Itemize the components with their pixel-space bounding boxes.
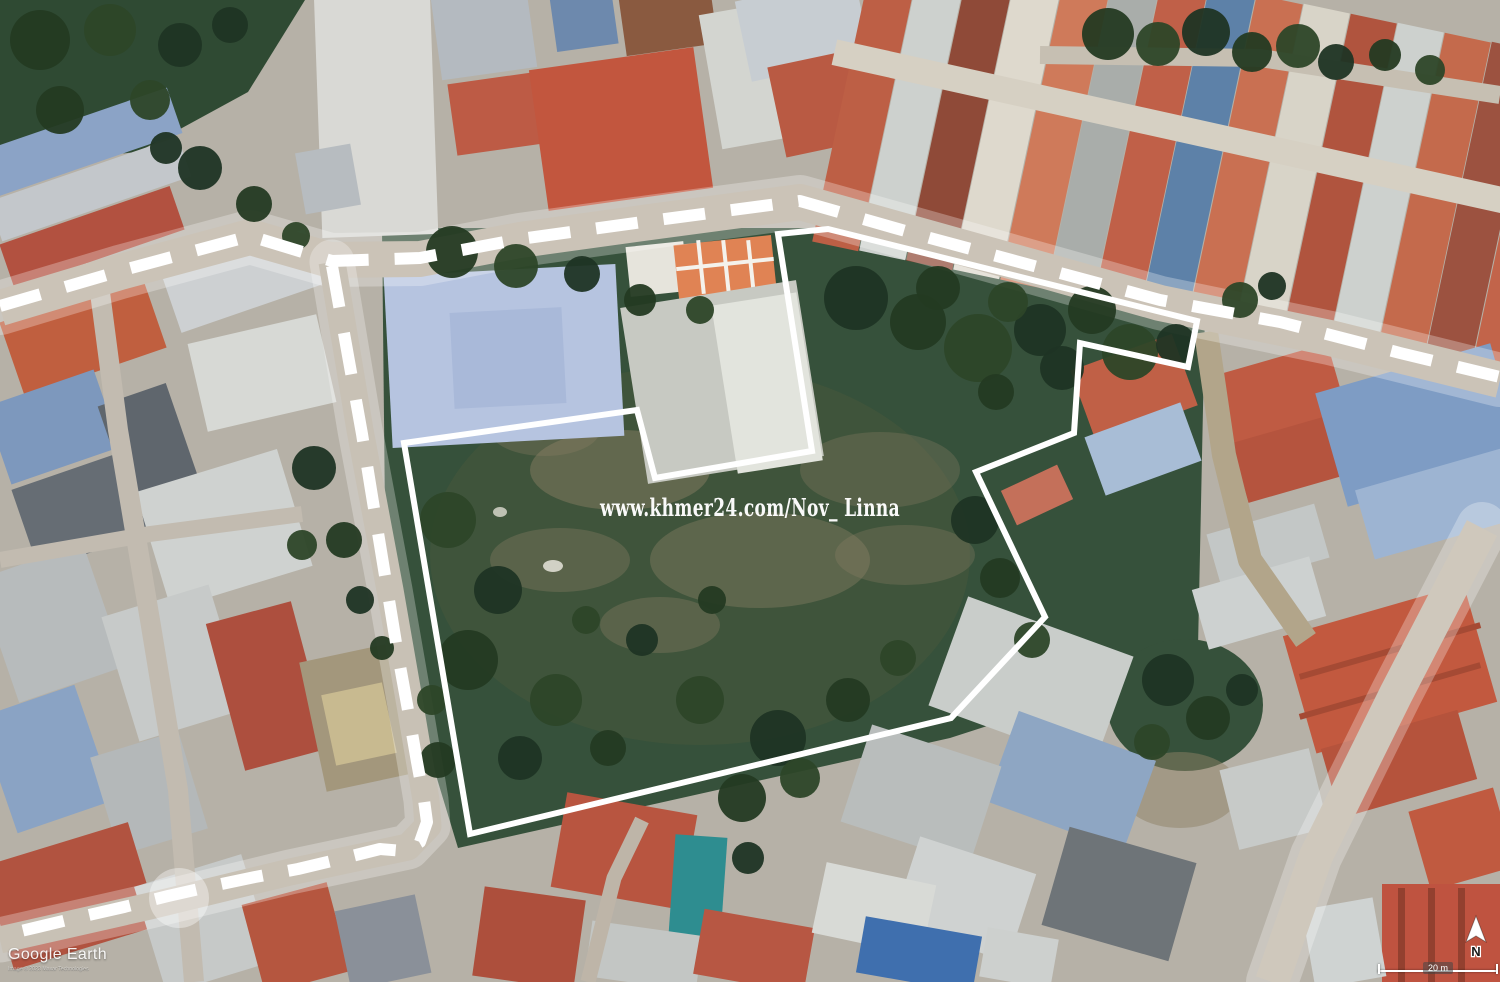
tree: [1318, 44, 1354, 80]
tree: [1182, 8, 1230, 56]
tree: [346, 586, 374, 614]
tree: [676, 676, 724, 724]
satellite-map-view: www.khmer24.com/Nov_ Linna Google Earth …: [0, 0, 1500, 982]
tree: [880, 640, 916, 676]
google-earth-logo: Google Earth: [8, 946, 107, 964]
scale-bar-label: 20 m: [1423, 962, 1453, 974]
tree: [292, 446, 336, 490]
tree: [1186, 696, 1230, 740]
tree: [1226, 674, 1258, 706]
tree: [1415, 55, 1445, 85]
building-roof: [295, 144, 361, 215]
tree: [686, 296, 714, 324]
tree: [36, 86, 84, 134]
building-roof: [450, 307, 567, 409]
tree: [1369, 39, 1401, 71]
tree: [698, 586, 726, 614]
tree: [287, 530, 317, 560]
tree: [826, 678, 870, 722]
dirt-patch: [835, 525, 975, 585]
north-label: N: [1471, 944, 1480, 959]
satellite-scene: www.khmer24.com/Nov_ Linna: [0, 0, 1500, 982]
tree: [572, 606, 600, 634]
tree: [326, 522, 362, 558]
building-roof: [472, 886, 586, 982]
tree: [988, 282, 1028, 322]
tree: [420, 742, 456, 778]
tree: [624, 284, 656, 316]
building-roof: [431, 0, 537, 80]
tree: [150, 132, 182, 164]
tree: [1136, 22, 1180, 66]
tree: [178, 146, 222, 190]
scale-bar: 20 m: [1378, 960, 1498, 980]
building-roof: [529, 47, 713, 211]
scale-bar-left-tick: [1378, 964, 1380, 974]
dirt-patch: [493, 507, 507, 517]
tree: [212, 7, 248, 43]
tree: [10, 10, 70, 70]
tree: [498, 736, 542, 780]
tree: [130, 80, 170, 120]
tree: [590, 730, 626, 766]
tree: [980, 558, 1020, 598]
tree: [626, 624, 658, 656]
scale-bar-right-tick: [1496, 964, 1498, 974]
tree: [824, 266, 888, 330]
tree: [417, 685, 447, 715]
tree: [1276, 24, 1320, 68]
tree: [1232, 32, 1272, 72]
tree: [1082, 8, 1134, 60]
tree: [916, 266, 960, 310]
watermark-text: www.khmer24.com/Nov_ Linna: [599, 493, 900, 522]
tree: [780, 758, 820, 798]
tree: [978, 374, 1014, 410]
tree: [474, 566, 522, 614]
tree: [732, 842, 764, 874]
tree: [84, 4, 136, 56]
dirt-patch: [543, 560, 563, 572]
tree: [1142, 654, 1194, 706]
tree: [158, 23, 202, 67]
building-roof: [447, 72, 542, 155]
tree: [944, 314, 1012, 382]
tree: [236, 186, 272, 222]
imagery-copyright-text: Image © 2023 Maxar Technologies: [8, 966, 89, 972]
tree: [530, 674, 582, 726]
tree: [1258, 272, 1286, 300]
building-roof: [549, 0, 618, 52]
north-arrow: N: [1462, 914, 1490, 960]
tree: [420, 492, 476, 548]
tree: [564, 256, 600, 292]
tree: [1134, 724, 1170, 760]
north-arrow-icon: [1466, 916, 1486, 942]
tree: [494, 244, 538, 288]
tree: [718, 774, 766, 822]
